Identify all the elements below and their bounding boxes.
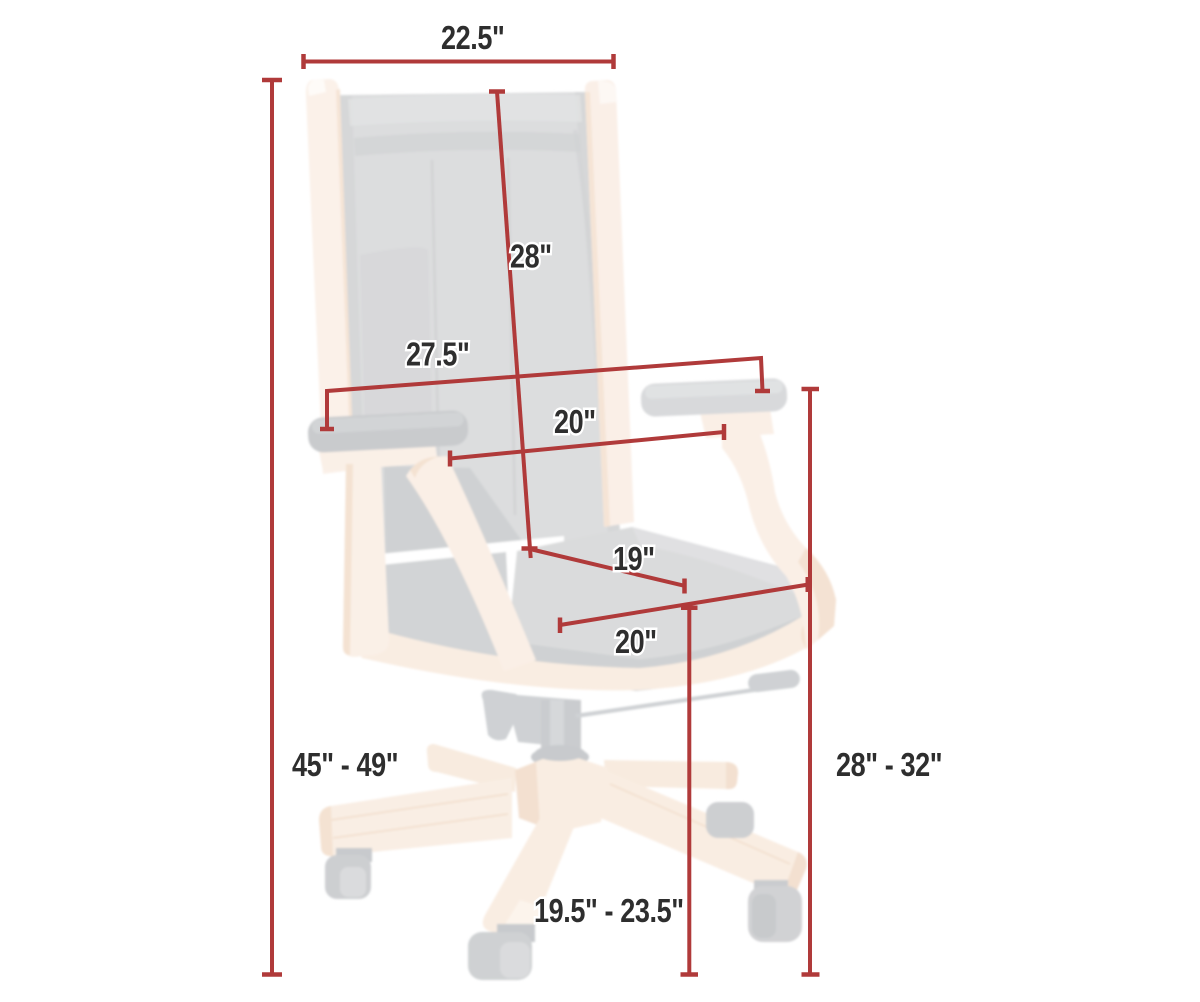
svg-text:20": 20" [554, 405, 596, 441]
svg-text:45" - 49": 45" - 49" [292, 748, 398, 784]
svg-text:22.5": 22.5" [441, 20, 504, 56]
svg-text:28" - 32": 28" - 32" [836, 748, 942, 784]
svg-text:19.5" - 23.5": 19.5" - 23.5" [534, 894, 684, 930]
svg-text:27.5": 27.5" [406, 337, 469, 373]
svg-text:19": 19" [613, 542, 655, 578]
svg-text:20": 20" [615, 625, 657, 661]
svg-text:28": 28" [510, 239, 552, 275]
